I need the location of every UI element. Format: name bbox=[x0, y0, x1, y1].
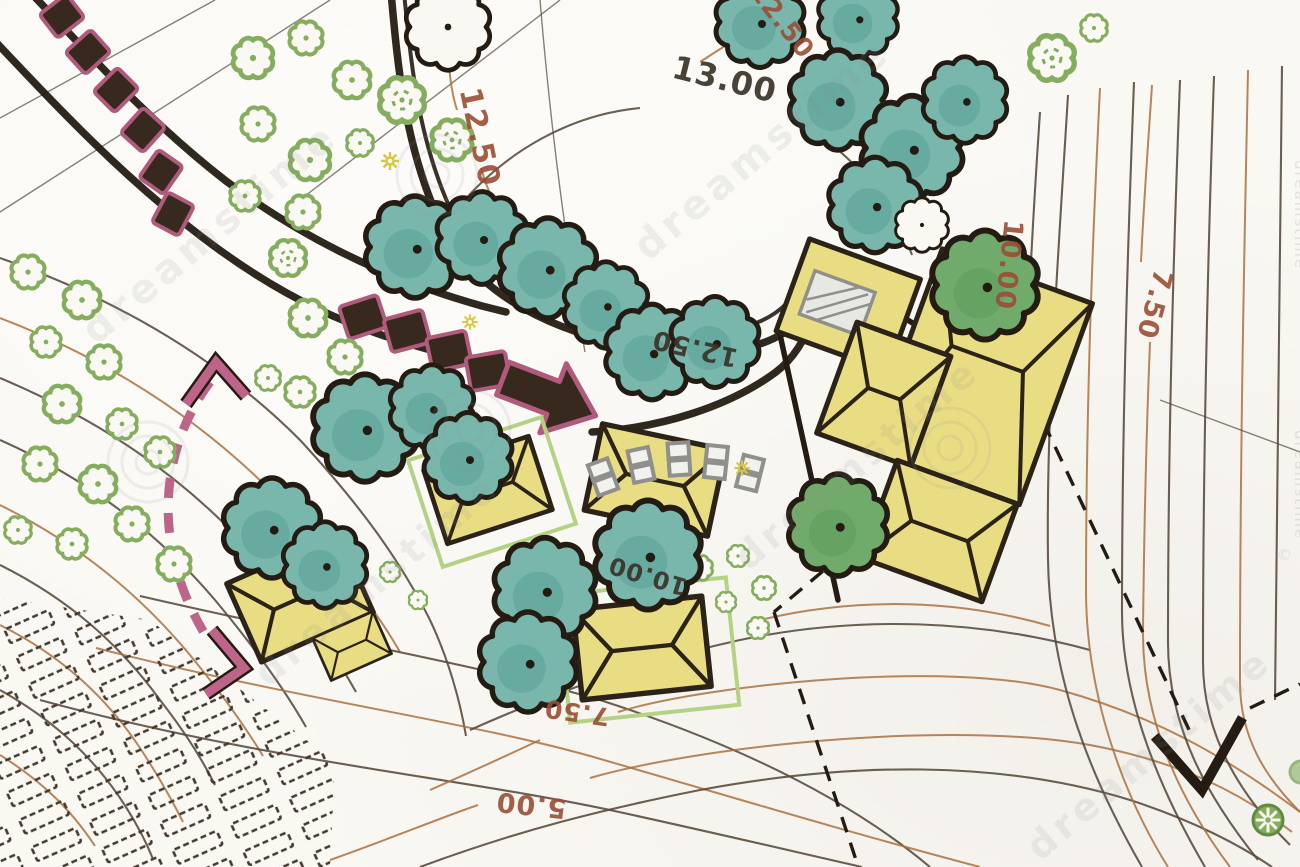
watermark-text: dreamstime bbox=[1291, 160, 1300, 270]
parking-stall bbox=[736, 455, 764, 491]
watermark-text: dreamstime bbox=[1291, 430, 1300, 540]
parking-stall bbox=[668, 442, 691, 476]
parking-stall bbox=[704, 445, 728, 479]
teal-tree bbox=[923, 57, 1006, 143]
watermark-copyright: © bbox=[1277, 546, 1294, 564]
paver bbox=[120, 107, 165, 152]
green-rosette-icon bbox=[1253, 805, 1283, 835]
site-plan-canvas: 13.00 12.50 12.50 12.50 10.00 10.00 7.50… bbox=[0, 0, 1300, 867]
green-rosette-icon bbox=[1290, 761, 1300, 783]
contour-label-5-00: 5.00 bbox=[494, 785, 567, 823]
white-tree bbox=[406, 0, 489, 70]
paver bbox=[383, 309, 430, 352]
white-tree bbox=[896, 198, 949, 253]
star-icon bbox=[462, 314, 477, 329]
parking-stall bbox=[628, 447, 655, 483]
rosettes bbox=[1253, 761, 1300, 835]
site-plan-drawing: 13.00 12.50 12.50 12.50 10.00 10.00 7.50… bbox=[0, 0, 1300, 867]
paver bbox=[93, 67, 138, 112]
